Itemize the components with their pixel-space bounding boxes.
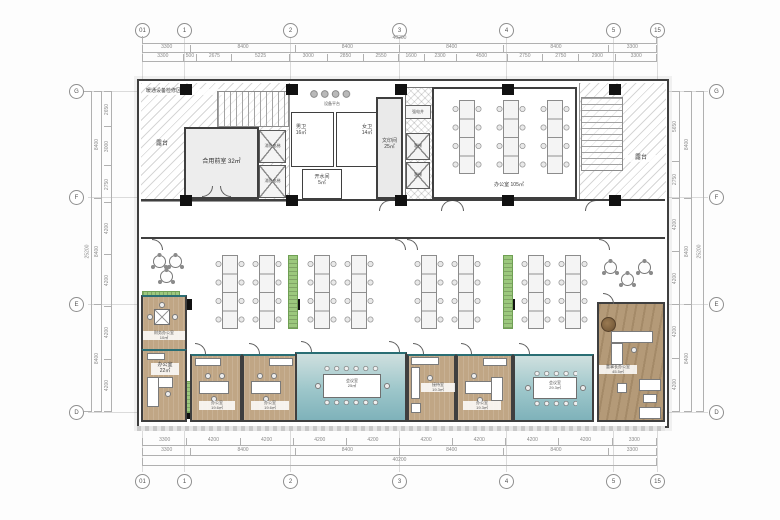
chair-dot <box>631 347 637 353</box>
grid-bubble: 2 <box>283 474 298 489</box>
dim-segment: 1600 <box>398 54 424 62</box>
building-outline: 暖通设备检修区域 露台 合用前室 32㎡ 消防电梯 消防电梯 设备平台 男卫 1… <box>137 79 669 428</box>
room-mens-toilet-label: 男卫 16㎡ <box>292 125 310 137</box>
dim-segment: 4200 <box>672 198 680 251</box>
room-office-22-label: 办公室 22㎡ <box>151 363 179 375</box>
desk-bank <box>452 100 482 174</box>
dim-segment: 3300 <box>142 45 190 53</box>
chairs <box>540 100 547 174</box>
dim-segment: 5650 <box>672 91 680 161</box>
chairs <box>544 255 551 329</box>
column <box>395 84 407 95</box>
chairs <box>307 255 314 329</box>
desks <box>222 255 238 329</box>
chairs <box>437 255 444 329</box>
door-arc <box>453 200 464 211</box>
electrical-shaft: 强电井 <box>405 105 431 119</box>
chairs <box>496 100 503 174</box>
sofa <box>269 358 293 366</box>
door-arc <box>519 343 530 354</box>
dim-segment: 2300 <box>424 54 456 62</box>
desk <box>491 377 503 401</box>
sofa <box>483 358 507 366</box>
door-arc <box>389 341 400 352</box>
desk-bank <box>540 100 570 174</box>
equipment-fans <box>309 89 353 100</box>
desk-bank <box>215 255 245 329</box>
dim-segment: 8400 <box>684 198 692 305</box>
door-arc <box>441 200 452 211</box>
dim-segment: 8400 <box>94 198 102 305</box>
grid-bubble: 01 <box>135 474 150 489</box>
dim-col-left-total: 25200 <box>84 91 92 412</box>
dim-segment: 4200 <box>104 254 112 306</box>
dim-segment: 4200 <box>346 438 399 446</box>
cabinet <box>147 353 165 360</box>
room-meeting-293-label: 会议室 29.3㎡ <box>541 381 569 390</box>
door-arc <box>195 343 206 354</box>
chairs <box>581 255 588 329</box>
exterior-wall-texture <box>137 426 665 431</box>
dim-segment: 4200 <box>505 438 558 446</box>
door-arc <box>407 239 418 250</box>
desks <box>351 255 367 329</box>
dim-segment: 3300 <box>612 438 657 446</box>
dim-col-left-major: 840084008400 <box>94 91 102 412</box>
dim-segment: 2750 <box>672 161 680 198</box>
dim-segment: 2750 <box>104 165 112 201</box>
chairs <box>367 255 374 329</box>
dim-segment: 8400 <box>503 45 607 53</box>
dim-segment: 4200 <box>672 358 680 412</box>
dim-segment: 4200 <box>240 438 293 446</box>
column <box>180 84 192 95</box>
chair-dot <box>159 302 165 308</box>
desks <box>459 100 475 174</box>
dim-segment: 4200 <box>293 438 346 446</box>
grid-bubble: E <box>709 297 724 312</box>
chairs <box>474 255 481 329</box>
room-office-196a-label: 办公室 19.6㎡ <box>199 401 235 410</box>
chair-dot <box>147 314 153 320</box>
grid-bubble: 4 <box>499 474 514 489</box>
chairs <box>414 255 421 329</box>
desk <box>147 377 159 407</box>
dim-segment: 25200 <box>84 91 92 412</box>
dim-segment: 2675 <box>196 54 231 62</box>
dim-col-right-detail: 565027504200420042004200 <box>672 91 680 412</box>
sofa <box>411 357 439 365</box>
desks <box>565 255 581 329</box>
desk-bank <box>521 255 551 329</box>
stair-top-right <box>581 97 623 171</box>
grid-bubble: D <box>709 405 724 420</box>
passenger-elevator: 客梯 <box>406 133 430 160</box>
chair-dot <box>525 385 531 391</box>
cabinet-strip <box>503 255 513 329</box>
room-shared-front-label: 合用前室 32㎡ <box>184 159 259 166</box>
round-table <box>158 268 175 285</box>
dim-segment: 3300 <box>608 45 657 53</box>
door-arc <box>413 343 424 354</box>
room-chairman-label: 董事长办公室 45.5㎡ <box>599 365 637 374</box>
dim-segment: 4200 <box>186 438 239 446</box>
desk-bank <box>558 255 588 329</box>
room-meeting-25-label: 会议室 25㎡ <box>337 379 367 388</box>
chairs <box>451 255 458 329</box>
room-mens-toilet <box>291 112 334 167</box>
dim-segment: 3300 <box>142 448 190 456</box>
dim-segment: 4200 <box>672 251 680 304</box>
round-table <box>619 271 636 288</box>
chair-dot <box>315 383 321 389</box>
dim-segment: 8400 <box>94 91 102 198</box>
dim-segment: 8400 <box>684 91 692 198</box>
dim-segment: 4200 <box>104 359 112 412</box>
dim-segment: 8400 <box>399 45 503 53</box>
room-pantry-label: 开水间 5㎡ <box>305 175 339 187</box>
dim-segment: 2550 <box>363 54 397 62</box>
dim-segment: 3000 <box>289 54 327 62</box>
room-finance-label: 财务办公室 10㎡ <box>143 331 185 340</box>
chairs <box>238 255 245 329</box>
grid-bubble: 3 <box>392 474 407 489</box>
round-table <box>636 259 653 276</box>
dim-segment: 3300 <box>615 54 657 62</box>
chair-row <box>533 400 577 407</box>
door-arc <box>603 293 614 304</box>
desk <box>199 381 229 394</box>
desks <box>458 255 474 329</box>
grid-bubble: F <box>69 190 84 205</box>
fire-elevator-label: 消防电梯 <box>265 144 281 149</box>
dim-segment: 3300 <box>142 54 183 62</box>
terrace-left-label: 露台 <box>147 141 177 148</box>
dim-segment: 2750 <box>507 54 543 62</box>
column <box>502 195 514 206</box>
column <box>180 195 192 206</box>
dim-segment: 3300 <box>142 438 186 446</box>
dim-segment: 8400 <box>399 448 503 456</box>
passenger-elevator-label: 客梯 <box>414 173 422 178</box>
dim-segment: 4200 <box>399 438 452 446</box>
dim-segment: 40200 <box>142 36 657 44</box>
column <box>609 84 621 95</box>
chair-dot <box>205 373 211 379</box>
chair-dot <box>384 383 390 389</box>
sofa <box>411 367 420 399</box>
room-office-196b-label: 办公室 19.6㎡ <box>251 401 289 410</box>
dim-segment: 2750 <box>542 54 578 62</box>
chairs <box>558 255 565 329</box>
chairs <box>275 255 282 329</box>
door-arc <box>599 239 610 250</box>
dim-segment: 8400 <box>503 448 607 456</box>
floorplan-canvas: 01 1 2 3 4 5 15 01 1 2 3 4 5 15 G F E D … <box>0 0 780 520</box>
terrace-right-label: 露台 <box>625 155 657 162</box>
grid-bubble: D <box>69 405 84 420</box>
column <box>286 195 298 206</box>
fire-elevator: 消防电梯 <box>259 130 286 163</box>
chair-dot <box>471 373 477 379</box>
fire-elevator: 消防电梯 <box>259 165 286 198</box>
chair-dot <box>219 373 225 379</box>
armchair <box>411 403 421 413</box>
dim-segment: 3000 <box>104 126 112 165</box>
dim-segment: 2650 <box>104 91 112 126</box>
grid-bubble: 1 <box>177 474 192 489</box>
chair-dot <box>165 391 171 397</box>
dim-segment: 8400 <box>190 45 294 53</box>
desk <box>251 381 281 394</box>
chairs <box>344 255 351 329</box>
chairs <box>563 100 570 174</box>
chair-dot <box>271 373 277 379</box>
grid-bubble: 5 <box>606 474 621 489</box>
desks <box>547 100 563 174</box>
dim-row-top-detail: 3300500267552253000285025501600230045002… <box>142 54 657 62</box>
chairs <box>252 255 259 329</box>
dim-segment: 8400 <box>295 448 399 456</box>
chairs <box>519 100 526 174</box>
grid-bubble: G <box>69 84 84 99</box>
corridor-wall-bottom <box>141 237 665 239</box>
dim-row-top-total: 40200 <box>142 36 657 44</box>
dim-row-bottom-detail: 3300420042004200420042004200420042003300 <box>142 438 657 446</box>
grid-bubble: F <box>709 190 724 205</box>
coffee-table <box>643 394 657 403</box>
dim-segment: 8400 <box>684 304 692 412</box>
chair-dot <box>580 385 586 391</box>
desks <box>503 100 519 174</box>
dim-col-left-detail: 2650300027504200420042004200 <box>104 91 112 412</box>
dim-segment: 2850 <box>327 54 364 62</box>
grid-bubble: E <box>69 297 84 312</box>
dim-col-right-major: 840084008400 <box>684 91 692 412</box>
door-arc <box>249 343 260 354</box>
fire-elevator-label: 消防电梯 <box>265 179 281 184</box>
dim-segment: 40200 <box>142 458 657 466</box>
desks <box>259 255 275 329</box>
passenger-elevator-label: 客梯 <box>414 144 422 149</box>
desks <box>528 255 544 329</box>
dim-segment: 500 <box>183 54 197 62</box>
round-table <box>602 259 619 276</box>
column <box>286 84 298 95</box>
chair-row <box>323 365 381 372</box>
meeting-table-small <box>154 309 170 325</box>
sofa <box>639 379 661 391</box>
dim-segment: 5225 <box>231 54 288 62</box>
dim-segment: 3300 <box>608 448 657 456</box>
chair-row <box>533 370 577 377</box>
column <box>502 84 514 95</box>
dim-segment: 2900 <box>578 54 615 62</box>
chairs <box>215 255 222 329</box>
chairs <box>475 100 482 174</box>
desk-bank <box>496 100 526 174</box>
plant <box>601 317 616 332</box>
room-womens-toilet-label: 女卫 14㎡ <box>358 125 376 137</box>
chairs <box>452 100 459 174</box>
room-office-top-label: 办公室 105㎡ <box>469 183 549 189</box>
dim-row-bottom-major: 330084008400840084003300 <box>142 448 657 456</box>
chair-dot <box>172 314 178 320</box>
dim-segment: 4200 <box>452 438 505 446</box>
desks <box>421 255 437 329</box>
coffee-table <box>427 375 433 381</box>
dim-segment: 8400 <box>94 304 102 412</box>
electrical-shaft-label: 强电井 <box>412 110 424 115</box>
dim-segment: 4200 <box>558 438 611 446</box>
chair-dot <box>257 373 263 379</box>
chair-row <box>323 399 381 406</box>
room-womens-toilet <box>336 112 377 167</box>
dim-row-top-major: 330084008400840084003300 <box>142 45 657 53</box>
cabinet-strip <box>288 255 298 329</box>
dim-segment: 4500 <box>456 54 507 62</box>
door-arc <box>395 239 406 250</box>
door-arc <box>461 343 472 354</box>
passenger-elevator: 客梯 <box>406 162 430 189</box>
room-office-193-label: 办公室 19.3㎡ <box>463 401 501 410</box>
dim-segment: 4200 <box>104 306 112 358</box>
executive-desk <box>611 331 653 343</box>
desk-bank <box>344 255 374 329</box>
grid-bubble: 15 <box>650 474 665 489</box>
grid-bubble: G <box>709 84 724 99</box>
dim-segment: 4200 <box>672 304 680 357</box>
door-arc <box>379 200 390 211</box>
equipment-platform-label: 设备平台 <box>305 102 359 107</box>
desk-bank <box>252 255 282 329</box>
dim-segment: 25200 <box>696 91 704 412</box>
sofa <box>195 358 221 366</box>
desk-bank <box>307 255 337 329</box>
chairs <box>521 255 528 329</box>
door-arc <box>152 239 163 250</box>
column <box>609 195 621 206</box>
door-arc <box>301 341 312 352</box>
chairs <box>330 255 337 329</box>
sofa <box>639 407 661 419</box>
armchair <box>617 383 627 393</box>
dim-segment: 4200 <box>104 202 112 254</box>
room-reception-label: 接待室 19.3㎡ <box>421 383 455 392</box>
desk-bank <box>451 255 481 329</box>
dim-segment: 8400 <box>295 45 399 53</box>
desk-return <box>611 343 623 365</box>
dim-row-bottom-total: 40200 <box>142 458 657 466</box>
desk-bank <box>414 255 444 329</box>
room-print-label: 文印间 25㎡ <box>380 139 399 151</box>
door-arc <box>585 200 596 211</box>
column <box>395 195 407 206</box>
dim-segment: 8400 <box>190 448 294 456</box>
stair-top-left <box>217 91 289 127</box>
desks <box>314 255 330 329</box>
dim-col-right-total: 25200 <box>696 91 704 412</box>
